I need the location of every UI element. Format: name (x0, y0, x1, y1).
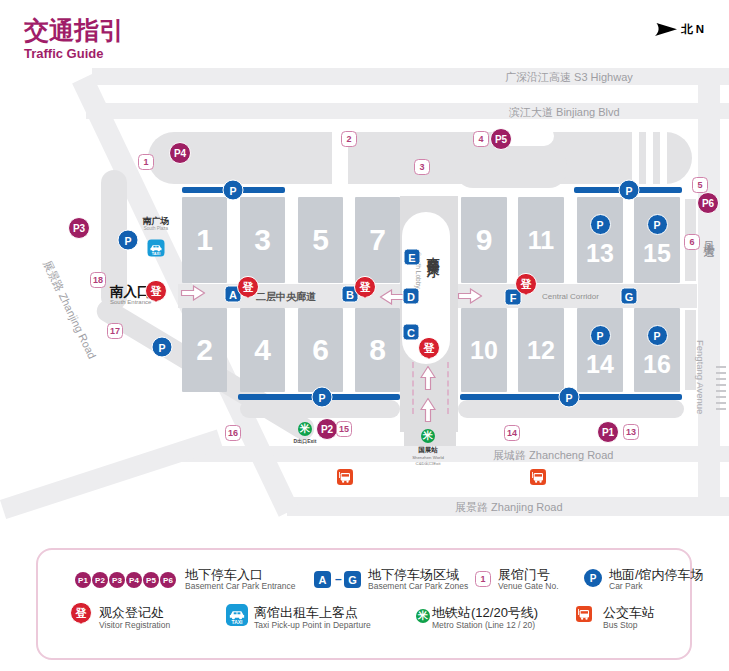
registration-glyph: 登 (243, 279, 254, 294)
flow-arrow-up (420, 398, 440, 423)
venue-gate-18: 18 (90, 272, 106, 288)
south-entrance-label-en: South Entrance (110, 299, 151, 305)
hall-5: 5 (298, 197, 343, 283)
road-fork (0, 430, 223, 519)
bus-stop-icon (530, 469, 546, 485)
station-label-zh: 国展站 (402, 446, 454, 455)
legend-sublabel: Visitor Registration (99, 620, 170, 630)
bus-stop-icon (337, 469, 353, 485)
basement-entrance-P6: P6 (697, 192, 719, 214)
bus-stop-icon (576, 606, 592, 622)
venue-gate-3: 3 (414, 159, 430, 175)
legend-gate-icon: 1 (475, 571, 491, 587)
legend-zone-a-icon: A (314, 571, 331, 588)
canopy-slat (646, 132, 653, 184)
hall-3: 3 (240, 197, 285, 283)
car-park-icon: P (590, 325, 611, 346)
flow-arrow-right (181, 285, 206, 305)
basement-entrance-P4: P4 (169, 142, 191, 164)
legend-P4-icon: P4 (126, 572, 142, 588)
south-plaza-label-en: South Plaza (137, 226, 175, 231)
visitor-registration-pin: 登 (237, 276, 259, 298)
legend-sublabel: Bus Stop (603, 620, 638, 630)
north-arrow-icon (655, 23, 677, 37)
venue-gate-6: 6 (684, 234, 700, 250)
corridor-label-en: Central Corridor (542, 292, 599, 301)
hall-1: 1 (182, 197, 227, 283)
registration-glyph: 登 (424, 340, 435, 355)
hall-number: 3 (254, 225, 271, 255)
legend-zone-g-icon: G (344, 571, 361, 588)
building-block (455, 148, 567, 188)
venue-gate-15: 15 (336, 421, 352, 437)
page-title: 交通指引 (24, 14, 124, 47)
legend-car-park-icon: P (584, 569, 602, 587)
hall-12: 12 (518, 308, 564, 392)
hall-2: 2 (182, 308, 227, 392)
registration-glyph: 登 (76, 605, 87, 620)
hall-10: 10 (461, 308, 507, 392)
legend-sublabel: Venue Gate No. (498, 581, 559, 591)
hall-13: P13 (577, 197, 623, 283)
hall-number: 10 (470, 338, 498, 363)
hall-number: 4 (254, 335, 271, 365)
metro-station-icon: 米 (298, 422, 312, 436)
station-label-en: Shenzhen World (396, 455, 460, 460)
parking-zone-C: C (403, 324, 420, 341)
building-canopy (148, 132, 692, 184)
hall-number: 2 (196, 335, 213, 365)
hall-number: 5 (312, 225, 329, 255)
road-label-s3: 广深沿江高速 S3 Highway (505, 70, 633, 85)
car-park-icon: P (152, 337, 173, 358)
legend-sublabel: Basement Car Park Zones (368, 581, 468, 591)
venue-gate-4: 4 (473, 131, 489, 147)
basement-entrance-P5: P5 (490, 128, 512, 150)
flow-arrow-left (380, 285, 405, 305)
venue-gate-14: 14 (504, 425, 520, 441)
page-subtitle: Traffic Guide (24, 46, 103, 61)
crosswalk (716, 366, 726, 410)
legend-sublabel: Car Park (609, 581, 643, 591)
road-label-zhancheng: 展城路 Zhancheng Road (493, 448, 613, 463)
hall-15: P15 (634, 197, 680, 283)
car-park-icon: P (647, 214, 668, 235)
hall-6: 6 (298, 308, 343, 392)
metro-station-icon: 米 (416, 609, 430, 623)
hall-number: 16 (643, 352, 671, 377)
hall-number: 12 (527, 338, 555, 363)
venue-gate-16: 16 (225, 425, 241, 441)
road-label-fengtang-zh: 凤塘大道 (701, 232, 716, 240)
car-park-icon: P (118, 230, 139, 251)
hall-8: 8 (355, 308, 400, 392)
flow-arrow-right (458, 288, 483, 308)
road-label-zhanjing-bottom: 展景路 Zhanjing Road (455, 500, 563, 515)
parking-zone-D: D (403, 288, 420, 305)
canopy-slat (632, 132, 639, 184)
hall-number: 14 (586, 352, 614, 377)
road-s3-highway (92, 68, 729, 85)
hall-4: 4 (240, 308, 285, 392)
taxi-pickup-icon: TAXI (148, 240, 165, 257)
north-label: 北 N (681, 22, 704, 37)
car-park-icon: P (619, 180, 640, 201)
visitor-registration-pin: 登 (70, 602, 92, 624)
hall-number: 8 (369, 335, 386, 365)
legend-P2-icon: P2 (92, 572, 108, 588)
venue-gate-1: 1 (138, 154, 154, 170)
compass: 北 N (655, 22, 704, 37)
visitor-registration-pin: 登 (145, 280, 167, 302)
car-park-icon: P (647, 325, 668, 346)
visitor-registration-pin: 登 (354, 276, 376, 298)
hall-14: P14 (577, 308, 623, 392)
hall-11: 11 (518, 197, 564, 283)
parking-zone-G: G (621, 288, 638, 305)
hall-number: 1 (196, 225, 213, 255)
legend-basement-entrance-icons: P1P2P3P4P5P6 (75, 572, 176, 588)
station-exit-label: C&D出口Exit (396, 461, 460, 466)
hall-9: 9 (461, 197, 507, 283)
basement-entrance-P1: P1 (597, 421, 619, 443)
legend: P1P2P3P4P5P6 地下停车入口 Basement Car Park En… (36, 548, 692, 660)
canopy-slat (660, 132, 667, 184)
venue-gate-2: 2 (341, 131, 357, 147)
legend-range-dash: – (335, 572, 342, 586)
car-park-icon: P (559, 387, 580, 408)
svg-text:TAXI: TAXI (152, 252, 160, 256)
hall-number: 7 (369, 225, 386, 255)
hall-number: 9 (476, 225, 493, 255)
legend-sublabel: Metro Station (Line 12 / 20) (432, 620, 535, 630)
road-label-binjiang: 滨江大道 Binjiang Blvd (509, 105, 620, 120)
hall-16: P16 (634, 308, 680, 392)
svg-text:TAXI: TAXI (232, 620, 244, 625)
legend-P1-icon: P1 (75, 572, 91, 588)
registration-glyph: 登 (360, 279, 371, 294)
legend-P3-icon: P3 (109, 572, 125, 588)
visitor-registration-pin: 登 (418, 337, 440, 359)
legend-sublabel: Taxi Pick-up Point in Departure (254, 620, 371, 630)
visitor-registration-pin: 登 (515, 273, 537, 295)
hall-number: 11 (528, 228, 554, 253)
registration-glyph: 登 (151, 283, 162, 298)
traffic-guide-map: 交通指引 Traffic Guide 北 N 广深沿江高速 S3 Highway… (0, 0, 729, 671)
hall-number: 6 (312, 335, 329, 365)
car-park-icon: P (223, 180, 244, 201)
venue-gate-17: 17 (107, 323, 123, 339)
hall-7: 7 (355, 197, 400, 283)
metro-d-exit-label: D出口Exit (283, 438, 327, 444)
corridor-label-zh: 二层中央廊道 (256, 290, 316, 304)
registration-glyph: 登 (521, 276, 532, 291)
hall-number: 15 (643, 241, 671, 266)
legend-P6-icon: P6 (160, 572, 176, 588)
taxi-pickup-icon: TAXI (226, 604, 248, 626)
parking-zone-E: E (404, 249, 421, 266)
metro-station-icon: 米 (421, 429, 435, 443)
car-park-icon: P (590, 214, 611, 235)
venue-gate-5: 5 (692, 177, 708, 193)
legend-sublabel: Basement Car Park Entrance (185, 581, 296, 591)
flow-arrow-up (420, 366, 440, 391)
queue-line (412, 362, 414, 414)
road-binjiang-blvd (86, 103, 729, 119)
queue-line (447, 362, 449, 414)
south-lobby-label-zh: 南登录大厅 (424, 247, 441, 257)
basement-entrance-P3: P3 (68, 217, 90, 239)
hall-number: 13 (586, 241, 614, 266)
car-park-icon: P (312, 387, 333, 408)
venue-gate-13: 13 (623, 424, 639, 440)
basement-entrance-P2: P2 (316, 418, 338, 440)
legend-P5-icon: P5 (143, 572, 159, 588)
road-label-fengtang-en: Fengtang Avenue (695, 340, 706, 414)
